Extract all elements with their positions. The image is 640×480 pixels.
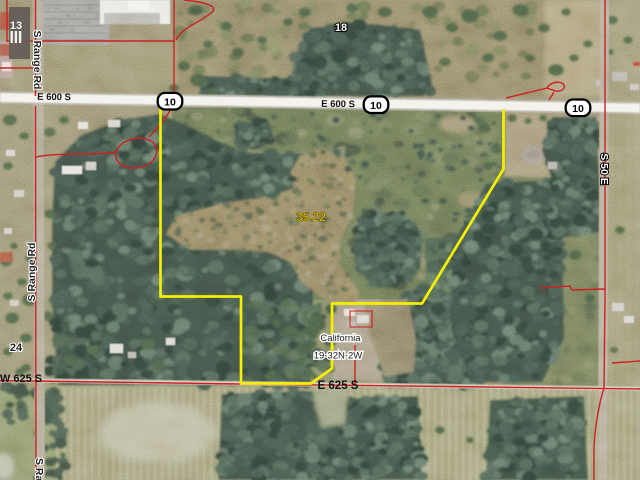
svg-text:19-32N-2W: 19-32N-2W [314, 351, 363, 362]
svg-text:California: California [320, 333, 361, 344]
svg-text:S Range Rd: S Range Rd [31, 31, 43, 90]
svg-text:10: 10 [164, 96, 176, 108]
svg-text:24: 24 [10, 342, 23, 354]
svg-text:35.22: 35.22 [296, 210, 326, 224]
svg-text:S Range Rd: S Range Rd [26, 243, 38, 302]
svg-text:E 600 S: E 600 S [37, 92, 71, 104]
svg-text:W 625 S: W 625 S [0, 373, 42, 385]
svg-text:13: 13 [10, 20, 22, 32]
svg-text:10: 10 [572, 103, 584, 115]
svg-text:S 50 E: S 50 E [598, 153, 610, 185]
svg-text:E 600 S: E 600 S [321, 99, 355, 111]
svg-text:18: 18 [335, 22, 347, 34]
svg-text:E 625 S: E 625 S [318, 380, 359, 392]
svg-text:10: 10 [370, 100, 382, 112]
svg-text:S Range Rd: S Range Rd [33, 458, 45, 480]
